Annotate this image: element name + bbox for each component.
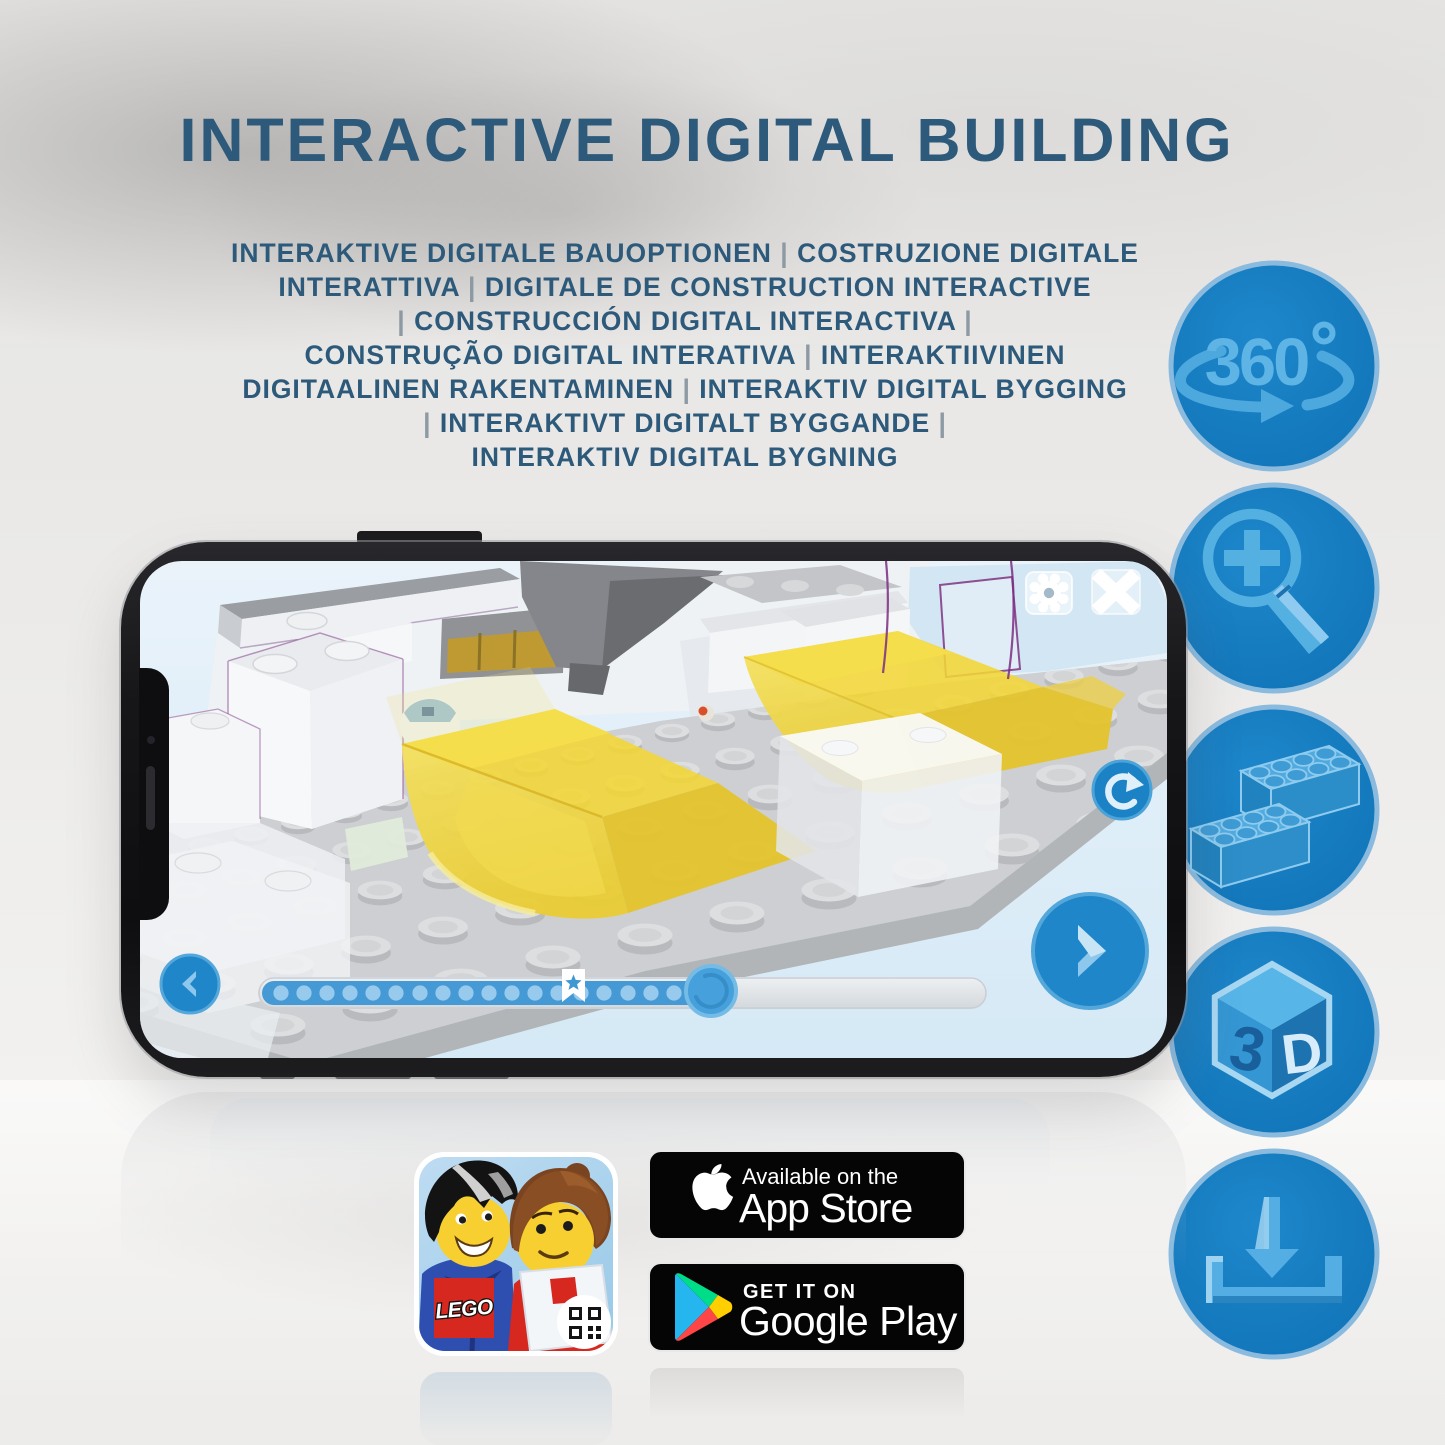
svg-text:360: 360 xyxy=(1205,325,1309,400)
svg-text:App Store: App Store xyxy=(739,1185,912,1231)
svg-text:D: D xyxy=(1278,1019,1326,1086)
svg-text:Google Play: Google Play xyxy=(739,1298,958,1344)
